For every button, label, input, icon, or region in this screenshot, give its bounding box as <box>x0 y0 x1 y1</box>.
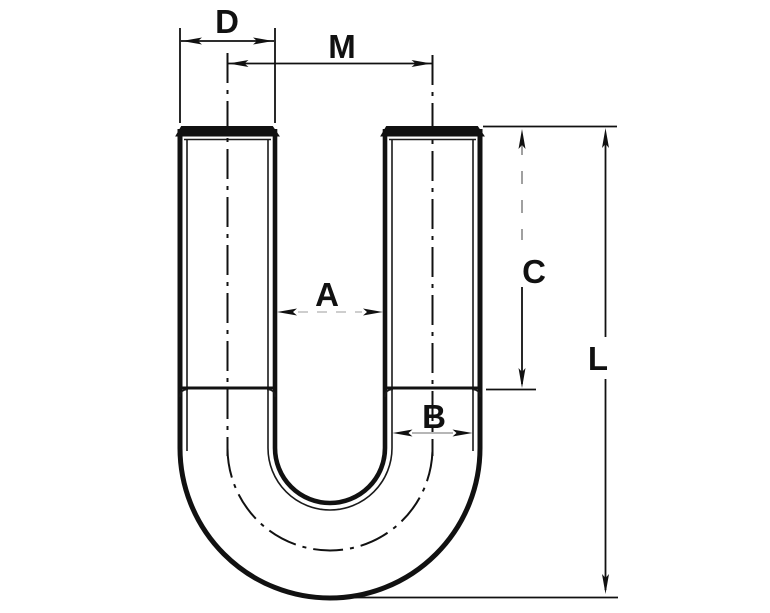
u-bolt-diagram: D M A B <box>0 0 770 613</box>
inner-profile <box>275 129 385 503</box>
u-bolt-drawing: D M A B <box>0 0 770 613</box>
u-bolt-outline <box>176 127 484 599</box>
a-label: A <box>315 276 339 313</box>
b-label: B <box>422 398 446 435</box>
bend-centerline-arc <box>228 448 433 550</box>
dimension-a: A <box>277 276 383 316</box>
m-label: M <box>328 28 356 65</box>
dimension-b: B <box>393 398 473 437</box>
outer-profile <box>180 129 480 598</box>
d-label: D <box>215 3 239 40</box>
dimension-m: M <box>228 28 432 67</box>
a-arrow-right-icon <box>363 309 383 316</box>
c-label: C <box>522 253 546 290</box>
b-arrow-right-icon <box>453 430 473 437</box>
a-arrow-left-icon <box>277 309 297 316</box>
b-arrow-left-icon <box>393 430 413 437</box>
l-label: L <box>588 340 608 377</box>
root-line-inner-and-rod-arc <box>268 139 392 510</box>
